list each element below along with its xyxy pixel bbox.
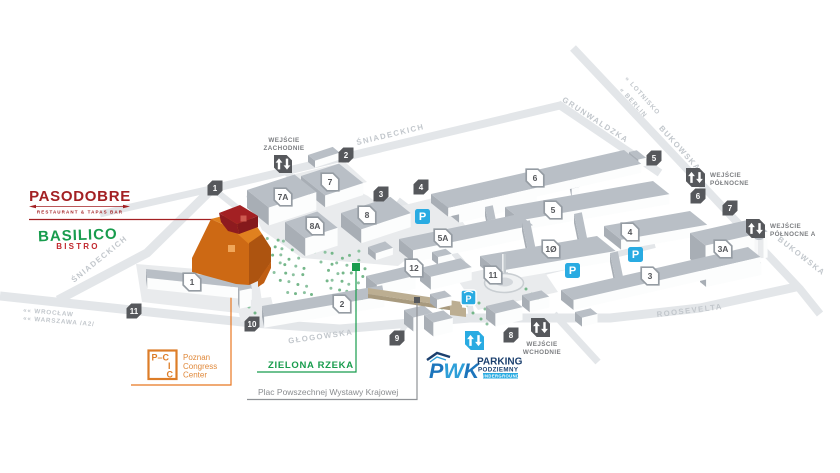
svg-text:P: P — [419, 211, 426, 223]
svg-text:8: 8 — [509, 331, 514, 340]
svg-text:P: P — [569, 265, 576, 277]
svg-text:3A: 3A — [718, 244, 729, 254]
svg-text:6: 6 — [533, 173, 538, 183]
svg-text:ZIELONA RZEKA: ZIELONA RZEKA — [268, 360, 354, 371]
svg-text:8A: 8A — [310, 221, 321, 231]
svg-text:9: 9 — [395, 334, 400, 343]
svg-text:PÓŁNOCNE: PÓŁNOCNE — [710, 178, 749, 187]
svg-text:4: 4 — [628, 227, 633, 237]
svg-text:11: 11 — [130, 307, 139, 316]
svg-text:Poznan: Poznan — [183, 353, 210, 362]
svg-text:3: 3 — [648, 271, 653, 281]
svg-text:WEJŚCIE: WEJŚCIE — [268, 135, 299, 144]
svg-text:1: 1 — [190, 277, 195, 287]
svg-text:BISTRO: BISTRO — [56, 242, 99, 251]
svg-text:Plac Powszechnej Wystawy Krajo: Plac Powszechnej Wystawy Krajowej — [258, 387, 398, 397]
svg-text:UNDERGROUND: UNDERGROUND — [482, 374, 520, 379]
svg-text:PWK: PWK — [429, 359, 481, 383]
svg-text:10: 10 — [248, 320, 257, 329]
svg-text:RESTAURANT & TAPAS BAR: RESTAURANT & TAPAS BAR — [37, 210, 123, 215]
svg-text:4: 4 — [419, 183, 424, 192]
svg-text:5: 5 — [652, 154, 657, 163]
svg-text:6: 6 — [696, 192, 701, 201]
svg-text:C: C — [167, 370, 174, 380]
svg-text:ZACHODNIE: ZACHODNIE — [263, 145, 304, 152]
svg-text:1Ø: 1Ø — [545, 244, 557, 254]
svg-text:7: 7 — [728, 204, 733, 213]
svg-text:P–C: P–C — [152, 353, 170, 363]
svg-text:3: 3 — [379, 190, 384, 199]
svg-text:PASODOBRE: PASODOBRE — [29, 188, 131, 205]
svg-text:WEJŚCIE: WEJŚCIE — [710, 170, 741, 179]
svg-text:7A: 7A — [278, 192, 289, 202]
svg-text:11: 11 — [489, 270, 498, 280]
svg-text:PODZIEMNY: PODZIEMNY — [478, 367, 519, 374]
svg-text:7: 7 — [328, 177, 333, 187]
svg-text:PÓŁNOCNE A: PÓŁNOCNE A — [770, 229, 816, 238]
svg-text:P: P — [632, 249, 639, 261]
svg-text:WEJŚCIE: WEJŚCIE — [770, 221, 801, 230]
svg-text:WEJŚCIE: WEJŚCIE — [526, 339, 557, 348]
svg-text:WCHODNIE: WCHODNIE — [523, 349, 561, 356]
svg-text:P: P — [465, 294, 471, 304]
svg-text:1: 1 — [213, 184, 218, 193]
svg-text:2: 2 — [344, 151, 349, 160]
svg-text:5A: 5A — [438, 233, 449, 243]
svg-text:5: 5 — [551, 205, 556, 215]
svg-text:8: 8 — [365, 210, 370, 220]
svg-text:Center: Center — [183, 371, 207, 380]
svg-text:12: 12 — [409, 263, 419, 273]
svg-text:2: 2 — [340, 299, 345, 309]
